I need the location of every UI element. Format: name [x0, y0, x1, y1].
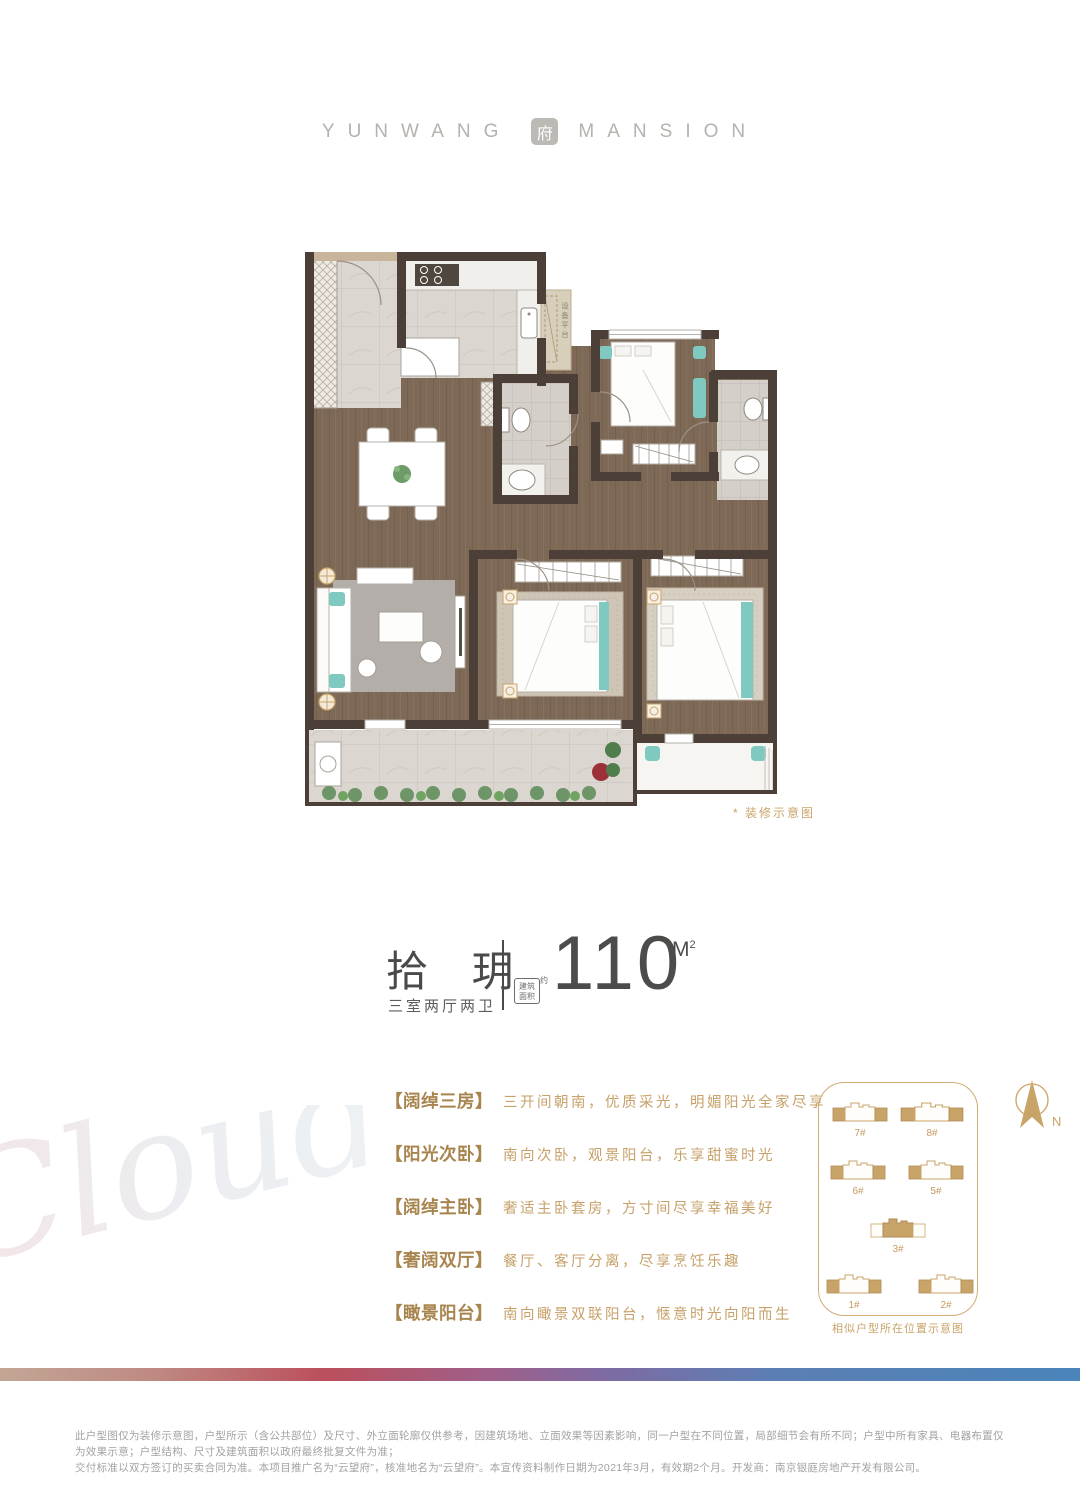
disclaimer: 此户型图仅为装修示意图，户型所示（含公共部位）及尺寸、外立面轮廓仅供参考，因建筑… [75, 1428, 1013, 1476]
feature-desc: 三开间朝南，优质采光，明媚阳光全家尽享 [503, 1091, 826, 1112]
siteplan-building-7: 7# [832, 1102, 888, 1139]
stamp-line-2: 面积 [515, 992, 539, 1002]
building-label: 8# [900, 1128, 964, 1139]
floorplan: 设备平台 [303, 250, 793, 815]
siteplan-caption: 相似户型所在位置示意图 [812, 1320, 984, 1336]
brand-seal: 府 [531, 118, 558, 145]
area-unit: M2 [672, 938, 696, 962]
area-value: 110 [552, 926, 682, 1002]
feature-desc: 奢适主卧套房，方寸间尽享幸福美好 [503, 1197, 775, 1218]
building-icon [918, 1274, 974, 1294]
stamp-line-1: 建筑 [515, 982, 539, 992]
floorplan-image: 设备平台 [303, 250, 793, 815]
building-icon [900, 1102, 964, 1122]
living-room [317, 568, 465, 710]
siteplan-building-3-highlighted: 3# [870, 1218, 926, 1255]
feature-row: 【瞰景阳台】 南向瞰景双联阳台，惬意时光向阳而生 [385, 1300, 826, 1322]
feature-desc: 南向瞰景双联阳台，惬意时光向阳而生 [503, 1303, 792, 1324]
feature-row: 【阔绰主卧】 奢适主卧套房，方寸间尽享幸福美好 [385, 1194, 826, 1216]
disclaimer-line-1: 此户型图仅为装修示意图，户型所示（含公共部位）及尺寸、外立面轮廓仅供参考，因建筑… [75, 1428, 1013, 1460]
equipment-platform-label: 设备平台 [560, 301, 569, 340]
brand-left: YUNWANG [322, 121, 512, 143]
feature-tag: 【阔绰主卧】 [385, 1194, 503, 1219]
siteplan-building-5: 5# [908, 1160, 964, 1197]
feature-desc: 餐厅、客厅分离，尽享烹饪乐趣 [503, 1250, 741, 1271]
compass-icon: N [1002, 1076, 1074, 1146]
building-icon [830, 1160, 886, 1180]
decoration-note: * 装修示意图 [733, 804, 815, 821]
feature-list: 【阔绰三房】 三开间朝南，优质采光，明媚阳光全家尽享 【阳光次卧】 南向次卧，观… [385, 1088, 826, 1353]
kitchen [401, 260, 541, 378]
brand-right: MANSION [578, 121, 758, 143]
feature-tag: 【瞰景阳台】 [385, 1300, 503, 1325]
entry [313, 260, 401, 408]
right-balcony [637, 740, 773, 790]
siteplan-building-2: 2# [918, 1274, 974, 1311]
building-label: 3# [870, 1244, 926, 1255]
feature-tag: 【阳光次卧】 [385, 1141, 503, 1166]
siteplan-building-1: 1# [826, 1274, 882, 1311]
siteplan: 7# 8# 6# 5# 3# [818, 1082, 978, 1316]
feature-row: 【阳光次卧】 南向次卧，观景阳台，乐享甜蜜时光 [385, 1141, 826, 1163]
feature-tag: 【阔绰三房】 [385, 1088, 503, 1113]
siteplan-building-8: 8# [900, 1102, 964, 1139]
south-balcony [309, 730, 633, 802]
building-label: 2# [918, 1300, 974, 1311]
building-icon [870, 1218, 926, 1238]
unit-rooms: 三室两厅两卫 [388, 995, 496, 1016]
stamp-side: 约 [540, 976, 548, 986]
dining-area [359, 428, 445, 520]
feature-tag: 【奢阔双厅】 [385, 1247, 503, 1272]
bathroom-2 [717, 380, 775, 500]
feature-row: 【阔绰三房】 三开间朝南，优质采光，明媚阳光全家尽享 [385, 1088, 826, 1110]
unit-name: 拾 玥 [386, 938, 530, 999]
building-icon [908, 1160, 964, 1180]
gradient-bar [0, 1368, 1080, 1381]
building-label: 6# [830, 1186, 886, 1197]
building-label: 1# [826, 1300, 882, 1311]
building-label: 5# [908, 1186, 964, 1197]
title-divider [502, 940, 504, 1010]
feature-desc: 南向次卧，观景阳台，乐享甜蜜时光 [503, 1144, 775, 1165]
bedroom-2 [497, 562, 623, 698]
compass: N [1002, 1076, 1074, 1151]
feature-row: 【奢阔双厅】 餐厅、客厅分离，尽享烹饪乐趣 [385, 1247, 826, 1269]
compass-label: N [1052, 1114, 1062, 1129]
cloud-watermark: Cloud [0, 1105, 390, 1350]
area-stamp: 建筑 面积 约 [514, 978, 540, 1004]
disclaimer-line-2: 交付标准以双方签订的买卖合同为准。本项目推广名为“云望府”，核准地名为“云望府”… [75, 1460, 1013, 1476]
cloud-watermark-text: Cloud [0, 1105, 390, 1299]
building-icon [832, 1102, 888, 1122]
building-label: 7# [832, 1128, 888, 1139]
brand-header: YUNWANG 府 MANSION [0, 118, 1080, 145]
siteplan-building-6: 6# [830, 1160, 886, 1197]
building-icon [826, 1274, 882, 1294]
